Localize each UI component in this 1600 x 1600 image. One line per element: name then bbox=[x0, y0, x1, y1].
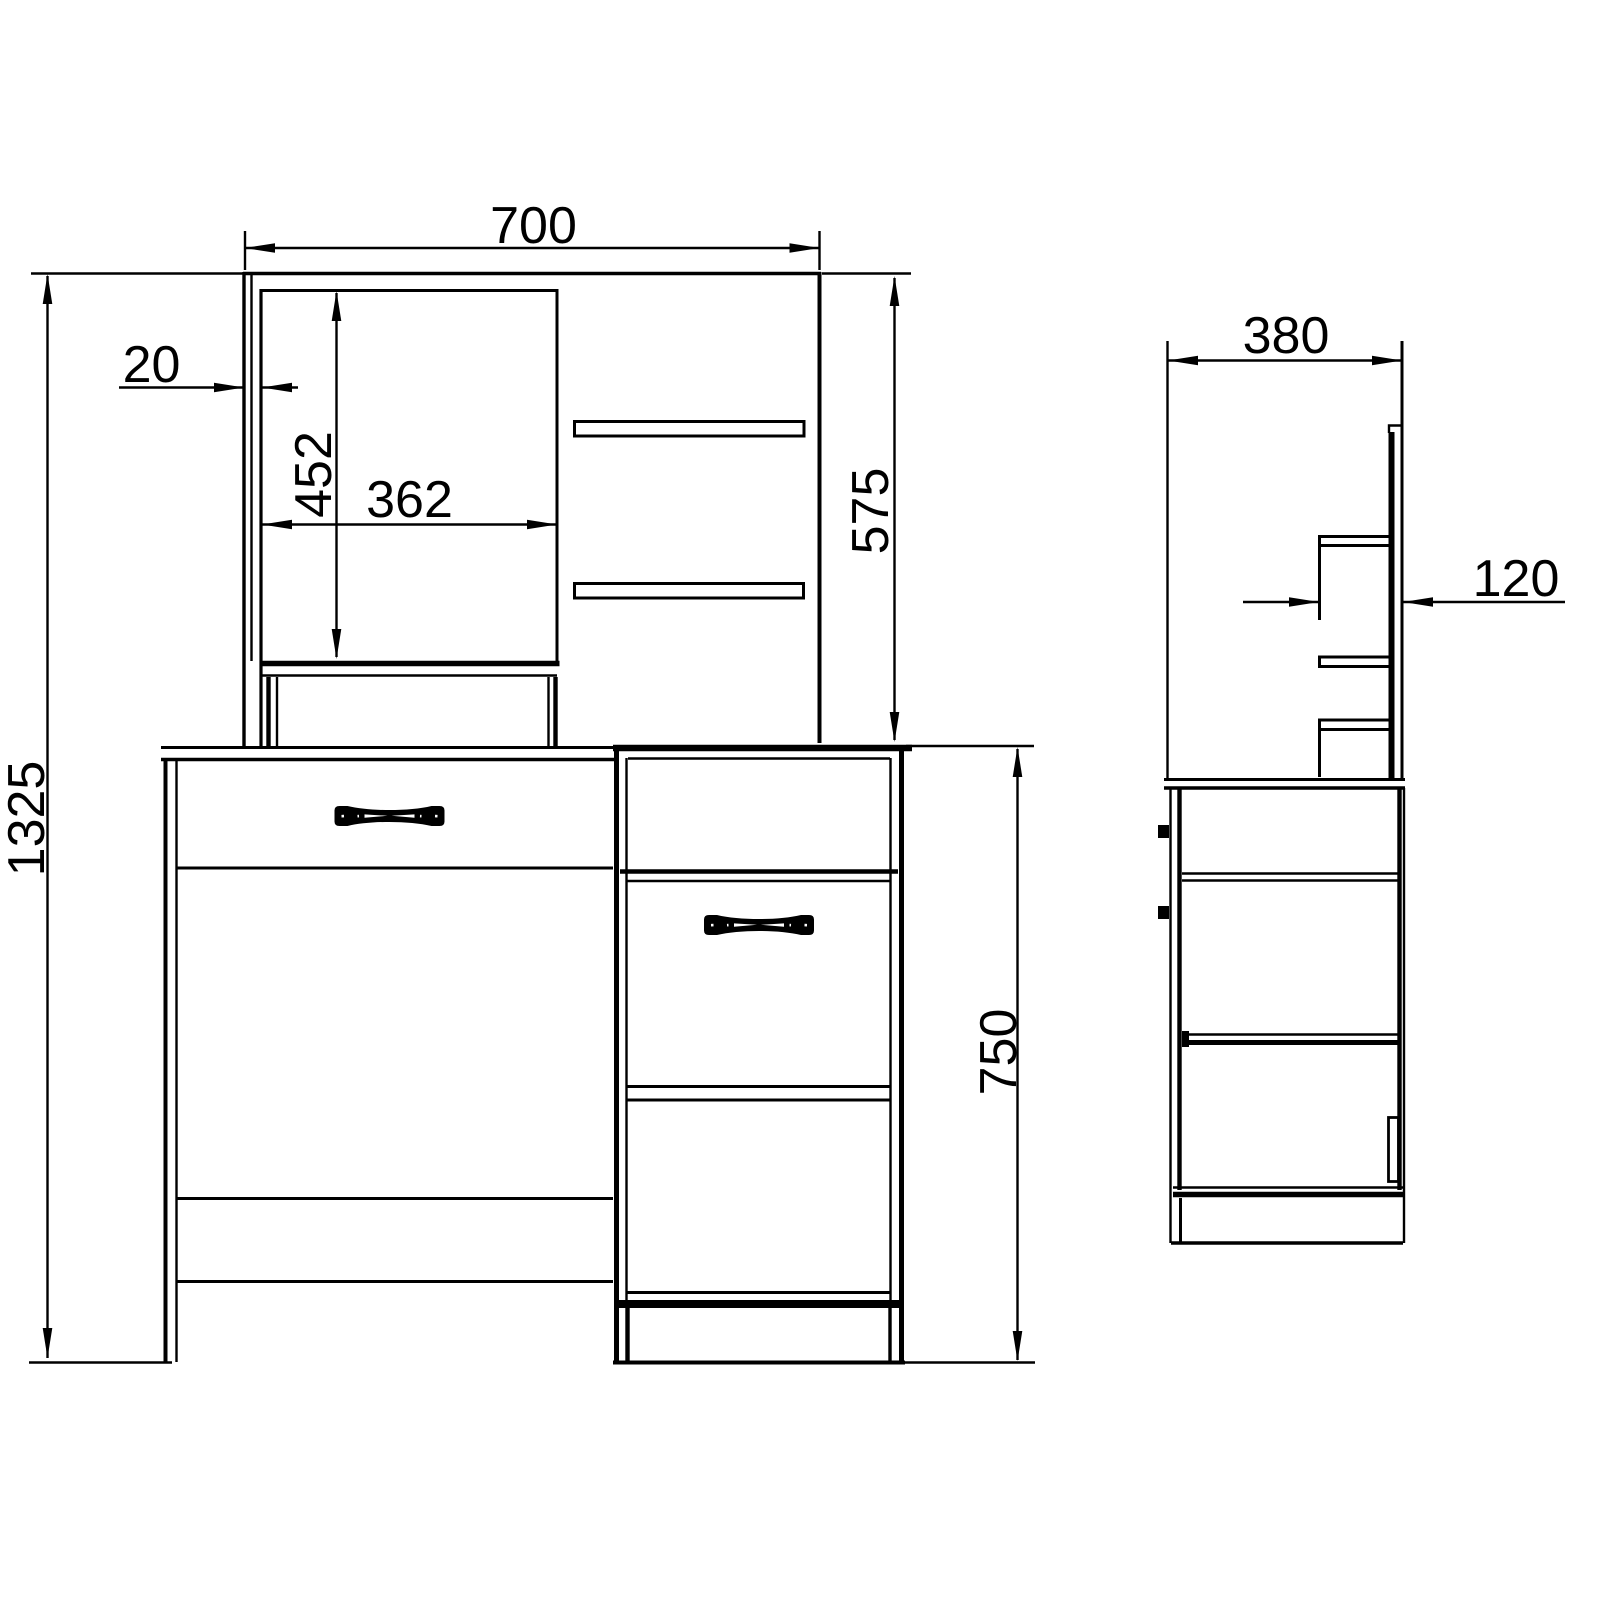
svg-text:700: 700 bbox=[490, 197, 577, 255]
svg-text:575: 575 bbox=[842, 468, 900, 555]
svg-text:750: 750 bbox=[970, 1009, 1028, 1096]
svg-text:452: 452 bbox=[285, 431, 343, 518]
svg-text:362: 362 bbox=[366, 471, 453, 529]
svg-text:20: 20 bbox=[123, 336, 181, 394]
svg-text:380: 380 bbox=[1243, 307, 1330, 365]
svg-text:1325: 1325 bbox=[0, 761, 56, 877]
svg-text:120: 120 bbox=[1473, 550, 1560, 608]
